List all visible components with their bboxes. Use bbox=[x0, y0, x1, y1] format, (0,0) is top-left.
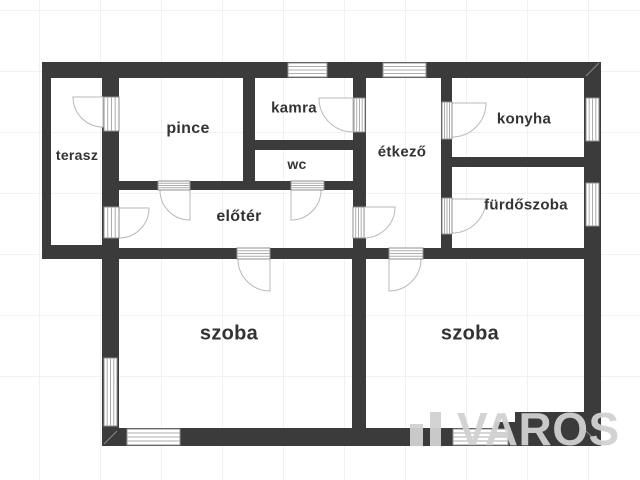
door-terasz-eloter bbox=[104, 207, 119, 238]
door-arc-pince-eloter bbox=[160, 190, 190, 220]
window-szoba-left-south bbox=[127, 429, 180, 445]
room-label-kamra: kamra bbox=[271, 100, 317, 117]
room-label-furdoszoba: fürdőszoba bbox=[484, 197, 568, 214]
window-top-etkezo bbox=[383, 63, 426, 77]
door-arc-szoba-left bbox=[238, 259, 270, 291]
wall-terrace-left bbox=[42, 62, 51, 259]
door-arc-furdoszoba bbox=[452, 199, 486, 233]
door-arc-terasz-pince bbox=[73, 97, 103, 127]
watermark-logo-bar-icon bbox=[410, 424, 423, 446]
door-arc-wc-eloter bbox=[291, 190, 321, 220]
window-szoba-left-west bbox=[104, 358, 117, 426]
wall-pince-east bbox=[243, 78, 255, 190]
room-label-terasz: terasz bbox=[56, 147, 98, 163]
room-label-szoba-right: szoba bbox=[441, 323, 499, 346]
room-label-konyha: konyha bbox=[497, 111, 551, 128]
window-furdoszoba bbox=[586, 183, 599, 226]
door-arc-kamra bbox=[319, 98, 353, 132]
room-label-szoba-left: szoba bbox=[200, 323, 258, 346]
wall-eloter-north bbox=[119, 181, 366, 190]
door-etkezo-szoba-right bbox=[389, 248, 423, 259]
door-arc-konyha bbox=[452, 103, 486, 137]
room-label-etkezo: étkező bbox=[378, 144, 427, 161]
door-terasz-pince bbox=[104, 97, 119, 131]
door-eloter-etkezo bbox=[353, 207, 364, 238]
door-wc-eloter bbox=[291, 181, 324, 190]
door-arc-terasz-eloter bbox=[119, 208, 149, 238]
wall-konyha-furdo-divider bbox=[450, 157, 584, 167]
door-arcs bbox=[73, 97, 486, 291]
window-konyha bbox=[586, 98, 599, 141]
room-label-pince: pince bbox=[166, 120, 209, 138]
room-label-wc: wc bbox=[287, 156, 306, 172]
watermark-text: VAROS bbox=[457, 406, 620, 452]
door-etkezo-konyha bbox=[442, 102, 452, 139]
door-pince-eloter bbox=[158, 181, 190, 190]
wall-kamra-wc-divider bbox=[255, 140, 366, 150]
door-eloter-szoba-left bbox=[237, 248, 270, 259]
door-etkezo-furdoszoba bbox=[442, 198, 452, 234]
door-arc-eloter-etkezo bbox=[364, 207, 395, 238]
floor-plan-page: terasz pince kamra wc étkező konyha előt… bbox=[0, 0, 640, 480]
door-arc-szoba-right bbox=[389, 259, 421, 291]
wall-szoba-divider bbox=[352, 248, 366, 428]
room-label-eloter: előtér bbox=[216, 208, 261, 226]
door-leaves bbox=[104, 97, 452, 259]
door-kamra-etkezo bbox=[354, 98, 365, 132]
window-top-kamra bbox=[288, 63, 327, 77]
watermark-logo-bar-icon bbox=[430, 412, 441, 446]
wall-szoba-north bbox=[102, 248, 601, 259]
